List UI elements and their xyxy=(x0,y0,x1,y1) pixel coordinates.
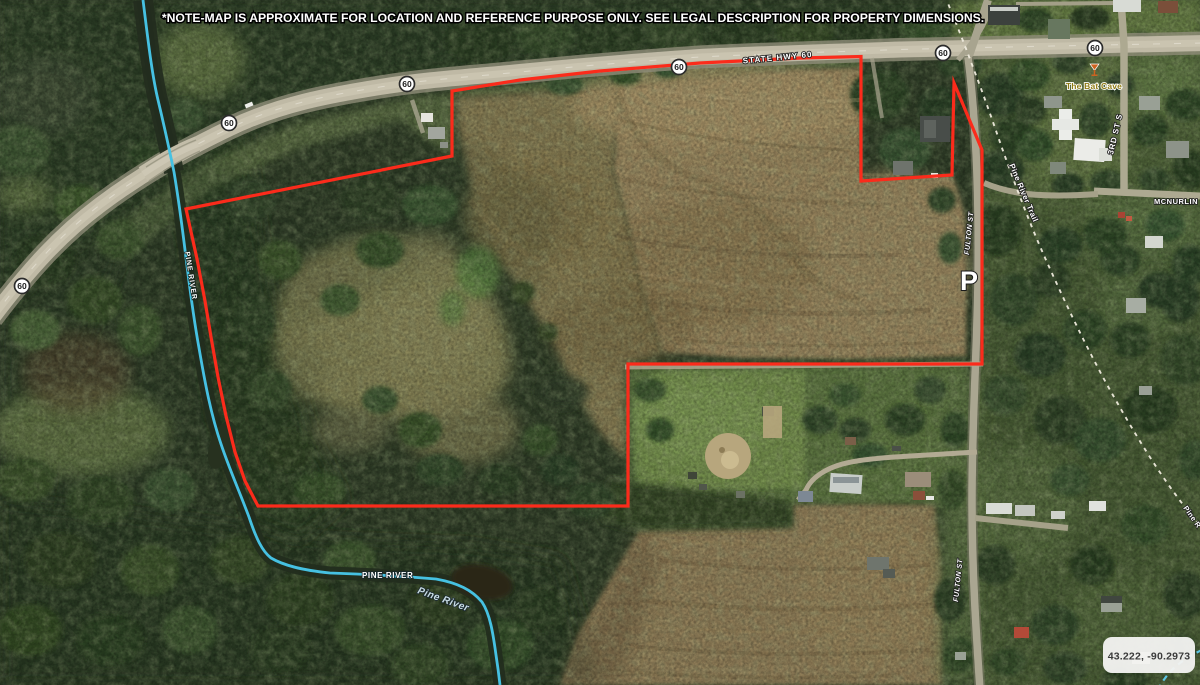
svg-text:60: 60 xyxy=(938,48,948,58)
svg-text:60: 60 xyxy=(17,281,27,291)
svg-text:60: 60 xyxy=(224,118,234,128)
svg-text:MCNURLIN ST: MCNURLIN ST xyxy=(1154,197,1200,206)
svg-text:60: 60 xyxy=(1090,43,1100,53)
svg-text:The Bat Cave: The Bat Cave xyxy=(1066,81,1122,91)
svg-text:43.222, -90.2973: 43.222, -90.2973 xyxy=(1108,651,1191,663)
svg-text:*NOTE-MAP IS APPROXIMATE FOR L: *NOTE-MAP IS APPROXIMATE FOR LOCATION AN… xyxy=(162,11,984,25)
svg-text:P: P xyxy=(960,266,978,296)
svg-text:60: 60 xyxy=(674,62,684,72)
svg-text:60: 60 xyxy=(402,79,412,89)
svg-text:PINE RIVER: PINE RIVER xyxy=(362,571,413,580)
